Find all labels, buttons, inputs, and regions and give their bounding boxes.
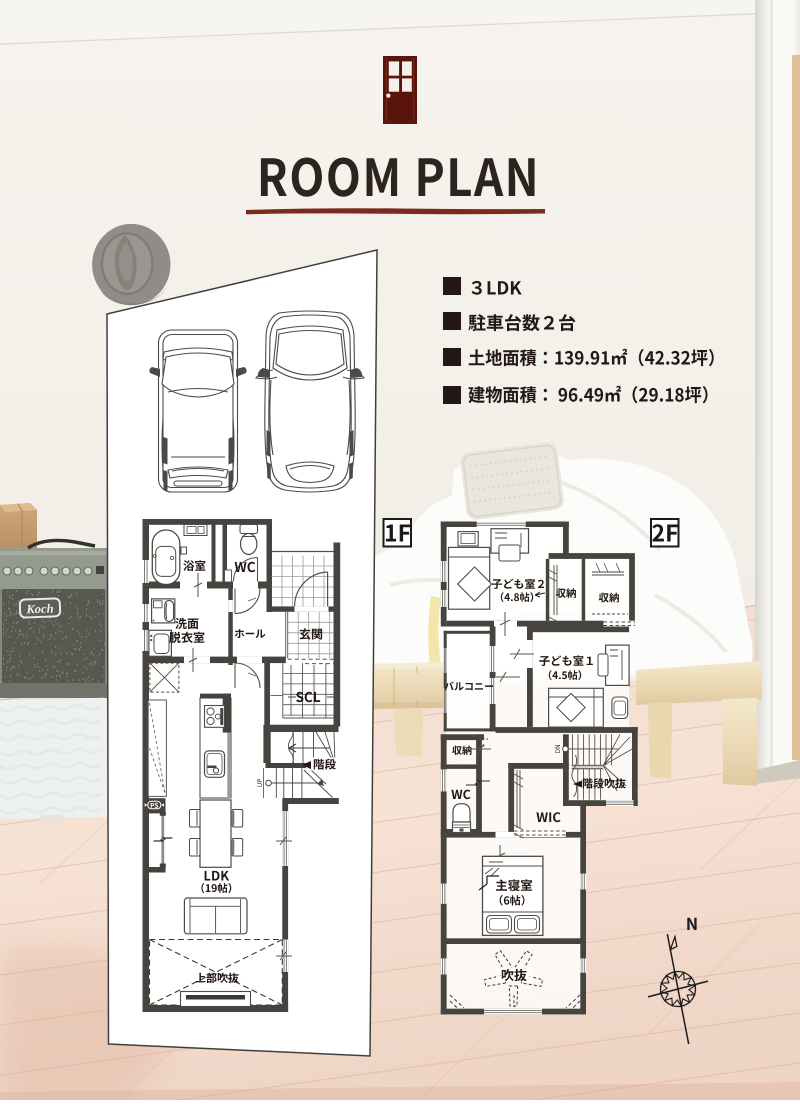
svg-text:Koch: Koch	[25, 601, 54, 616]
